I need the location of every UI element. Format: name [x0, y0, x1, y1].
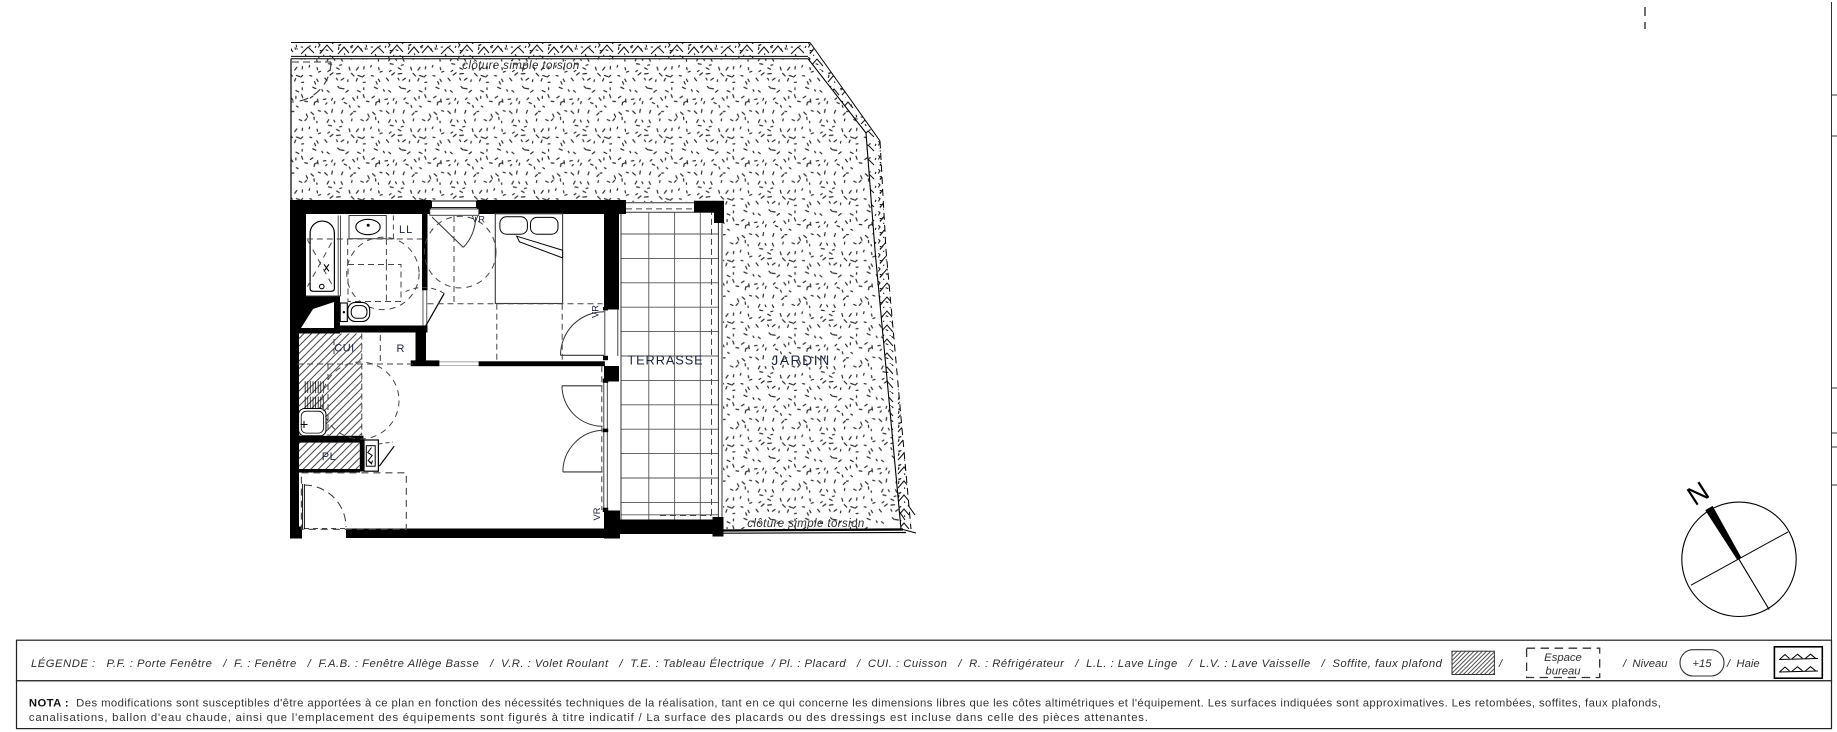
svg-text:VR: VR [592, 507, 602, 520]
svg-text:CUI: CUI [334, 343, 354, 355]
svg-text:/ Niveau: / Niveau [1622, 658, 1668, 670]
svg-text:NOTA : Des modifications sont: NOTA : Des modifications sont susceptibl… [29, 698, 1661, 710]
svg-text:LÉGENDE : P.F. : Porte Fenêt: LÉGENDE : P.F. : Porte Fenêtre / F. : Fe… [31, 657, 1443, 670]
svg-text:bureau: bureau [1545, 666, 1581, 678]
svg-text:canalisations, ballon d'eau ch: canalisations, ballon d'eau chaude, ains… [29, 712, 1149, 724]
svg-text:/ Haie: / Haie [1726, 658, 1760, 670]
svg-text:JARDIN: JARDIN [771, 352, 831, 368]
svg-text:+15: +15 [1692, 658, 1712, 670]
svg-text:PL: PL [322, 451, 336, 463]
svg-text:clôture simple torsion: clôture simple torsion [462, 60, 579, 72]
svg-text:clôture simple torsion: clôture simple torsion [747, 518, 864, 530]
svg-text:Espace: Espace [1544, 652, 1582, 664]
svg-text:VR: VR [591, 305, 601, 318]
svg-text:VR: VR [472, 215, 485, 225]
svg-text:TERRASSE: TERRASSE [627, 353, 703, 368]
svg-text:R: R [397, 343, 405, 355]
svg-text:LL: LL [399, 224, 413, 236]
